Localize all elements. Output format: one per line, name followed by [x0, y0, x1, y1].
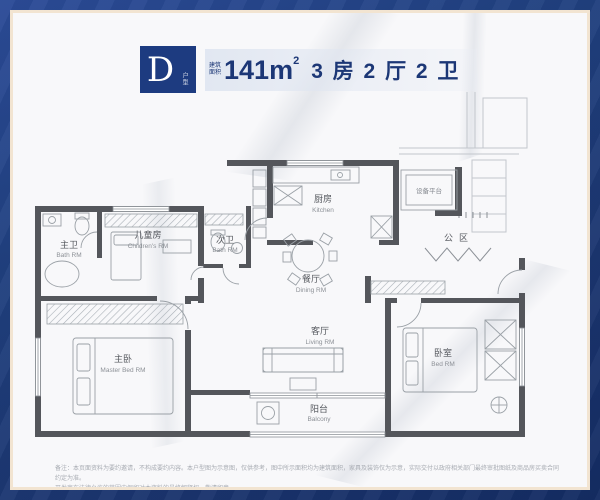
bedroom-door — [397, 303, 421, 327]
washer — [257, 402, 279, 424]
bathtub — [45, 261, 79, 287]
room-label-second-bath: 次卫 — [216, 234, 234, 245]
svg-text:Dining RM: Dining RM — [296, 287, 326, 294]
svg-text:Master Bed RM: Master Bed RM — [100, 367, 145, 374]
svg-text:Bath RM: Bath RM — [56, 252, 81, 259]
title-band: 建筑 面积 141m 2 3 房 2 厅 2 卫 — [205, 49, 477, 91]
room-label-dining: 餐厅 — [302, 273, 320, 284]
room-label-public: 公区 — [444, 233, 474, 243]
marble-panel: D 户型 建筑 面积 141m 2 3 房 2 厅 2 卫 — [10, 10, 590, 490]
coffee-table — [290, 378, 316, 390]
svg-text:Children's RM: Children's RM — [128, 243, 169, 250]
svg-text:Balcony: Balcony — [307, 416, 331, 423]
area-superscript: 2 — [293, 56, 299, 67]
room-label-living: 客厅 — [311, 325, 329, 336]
room-label-balcony: 阳台 — [310, 403, 328, 414]
entry-door — [498, 270, 522, 294]
master-bed — [73, 338, 173, 414]
svg-text:Living RM: Living RM — [306, 339, 335, 346]
neighbor-structures — [399, 92, 527, 232]
svg-text:Kitchen: Kitchen — [312, 207, 334, 214]
svg-text:Bed RM: Bed RM — [431, 361, 454, 368]
disclaimer-line1: 备注：本页面资料为要约邀请，不构成要约内容。本户型图为示意图，仅供参考，图中所示… — [55, 464, 561, 484]
sofa — [263, 348, 343, 372]
toilet — [75, 217, 89, 235]
area-label: 建筑 面积 — [209, 63, 221, 78]
furniture — [43, 167, 516, 424]
room-label-childrens: 儿童房 — [134, 229, 161, 240]
unit-type-logo: D 户型 — [140, 46, 196, 93]
kitchen-counter — [273, 167, 359, 183]
unit-type-sub-label: 户型 — [180, 72, 189, 86]
room-label-kitchen: 厨房 — [314, 193, 332, 204]
svg-text:Bath RM: Bath RM — [212, 247, 237, 254]
area-value: 141m — [224, 57, 293, 84]
room-label-equipment: 设备平台 — [416, 186, 442, 195]
layout-summary: 3 房 2 厅 2 卫 — [311, 55, 460, 85]
floorplan: 儿童房 Children's RM 主卫 Bath RM 次卫 Bath RM … — [35, 90, 535, 445]
room-label-bedroom: 卧室 — [434, 347, 452, 358]
unit-type-letter: D — [147, 53, 174, 87]
room-label-master: 主卧 — [114, 353, 132, 364]
room-label-master-bath: 主卫 — [60, 239, 78, 250]
disclaimer: 备注：本页面资料为要约邀请，不构成要约内容。本户型图为示意图，仅供参考，图中所示… — [55, 464, 561, 490]
kitchen-sink — [331, 170, 350, 180]
area-label-line1: 建筑 — [209, 63, 221, 71]
disclaimer-line2: 开发商在法律允许的范围内保留对本资料的最终解释权，敬请留意。 — [55, 484, 561, 490]
area-label-line2: 面积 — [209, 70, 221, 78]
second-bath-door — [223, 268, 239, 284]
bedroom-bed — [403, 328, 477, 392]
bath-sink — [43, 214, 61, 226]
poster-frame: D 户型 建筑 面积 141m 2 3 房 2 厅 2 卫 — [0, 0, 600, 500]
